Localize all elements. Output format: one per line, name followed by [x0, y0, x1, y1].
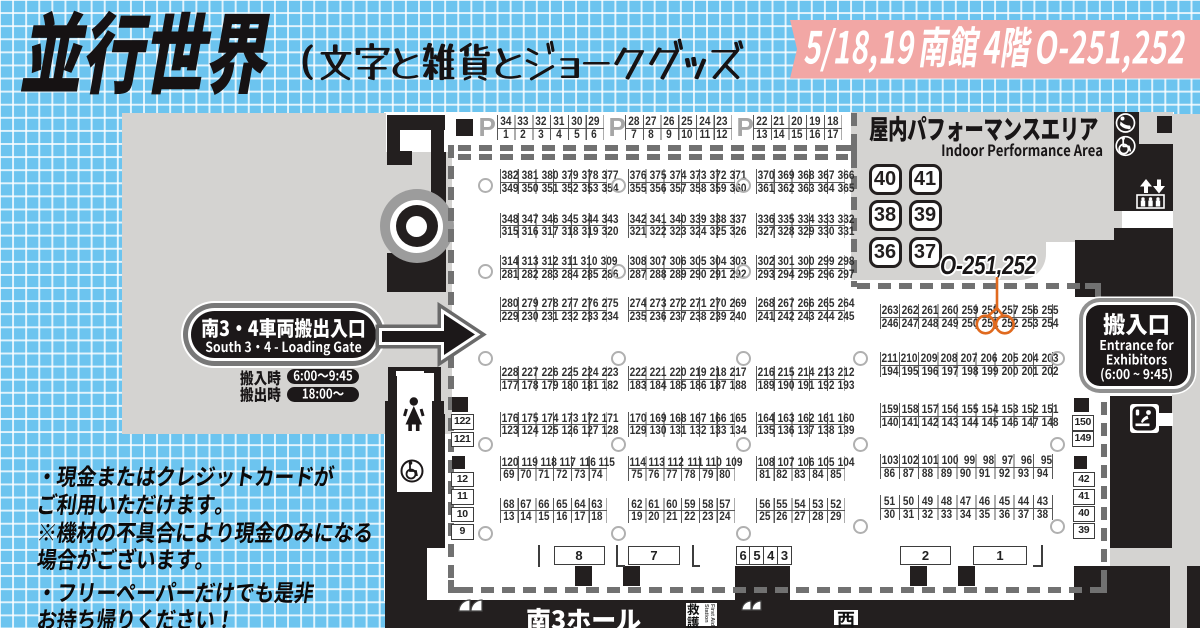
svg-text:Station: Station — [703, 604, 709, 623]
